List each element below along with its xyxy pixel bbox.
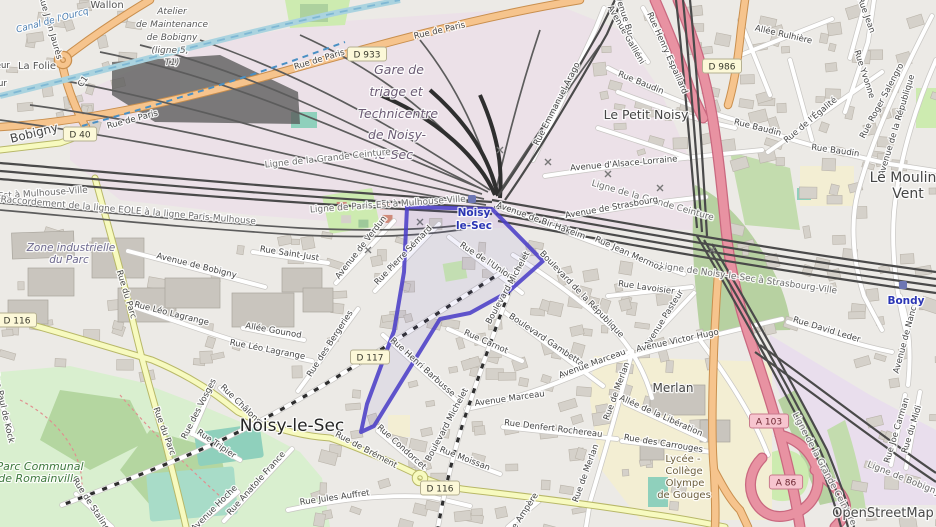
building — [301, 236, 315, 250]
building — [547, 301, 563, 317]
road-ref-badge: A 86 — [769, 475, 802, 489]
road-ref-badge: D 933 — [348, 47, 387, 61]
building — [781, 46, 789, 53]
ind-label: triage et — [369, 84, 423, 99]
map-canvas[interactable]: Rue de ParisRue de ParisRue de ParisRue … — [0, 0, 936, 527]
building — [619, 261, 633, 275]
svg-text:A 86: A 86 — [776, 479, 797, 489]
building — [740, 75, 754, 84]
building — [17, 102, 33, 111]
building — [381, 314, 394, 322]
building — [237, 245, 245, 255]
road-ref-badge: D 986 — [703, 59, 742, 73]
building — [341, 215, 351, 223]
building — [26, 32, 43, 43]
svg-text:D 986: D 986 — [709, 63, 736, 73]
building — [833, 235, 846, 244]
road-ref-badge: D 40 — [63, 127, 96, 141]
ind-label: Gare de — [374, 62, 424, 77]
building — [576, 387, 591, 397]
building — [856, 206, 867, 218]
building — [291, 239, 299, 244]
building — [889, 378, 900, 388]
station-icon[interactable] — [468, 195, 476, 203]
station-label: Bondy — [887, 295, 924, 307]
road-ref-badge: D 116 — [0, 313, 37, 327]
building — [827, 195, 842, 204]
building — [673, 138, 688, 150]
building — [600, 91, 609, 100]
building — [930, 414, 936, 420]
building — [55, 358, 66, 367]
poi-label: Atelier — [156, 7, 188, 17]
building — [583, 329, 592, 337]
building — [900, 254, 914, 264]
building — [593, 62, 607, 76]
building — [320, 483, 327, 495]
attribution-link[interactable]: OpenStreetMap — [832, 506, 934, 521]
ind-label: Technicentre — [358, 106, 438, 121]
building — [18, 282, 24, 290]
sub-label: Le Moulin — [870, 170, 936, 186]
sch-label: Lycée - — [665, 453, 701, 465]
ind2-label: Zone industrielle — [26, 242, 116, 254]
building — [449, 366, 458, 373]
poi-label: de Bobigny — [147, 33, 198, 43]
sch-label: Olympe — [666, 478, 705, 489]
sub-label: Merlan — [653, 381, 694, 395]
town-label: Noisy-le-Sec — [240, 416, 345, 436]
building — [454, 510, 471, 522]
building — [848, 312, 865, 319]
building — [825, 63, 837, 73]
building — [346, 403, 361, 410]
svg-text:D 116: D 116 — [4, 317, 31, 327]
sub-label: Le Petit Noisy — [604, 107, 689, 122]
building — [799, 187, 817, 199]
ind-label: de Noisy- — [368, 127, 427, 142]
building — [371, 255, 383, 266]
building — [498, 372, 516, 380]
svg-text:D 933: D 933 — [354, 51, 381, 61]
st-label: Pasteur — [0, 61, 10, 71]
sch-label: Collège — [665, 465, 702, 477]
building — [816, 96, 825, 102]
building — [739, 99, 754, 109]
poi-label: de Maintenance — [136, 20, 209, 30]
st-label: Pasteur — [0, 79, 7, 89]
building — [614, 123, 626, 130]
building — [352, 390, 361, 399]
building — [828, 43, 836, 52]
station-icon[interactable] — [899, 281, 907, 289]
building — [541, 480, 550, 490]
building — [292, 366, 302, 378]
building — [827, 22, 842, 36]
building — [200, 351, 213, 364]
place-label: Wallon — [90, 0, 123, 11]
map-viewport[interactable]: Rue de ParisRue de ParisRue de ParisRue … — [0, 0, 936, 527]
park-label: de Romainville — [0, 472, 80, 485]
building — [776, 157, 785, 165]
building — [822, 158, 836, 171]
building — [929, 188, 936, 194]
poi-label: T1) — [165, 58, 180, 68]
building — [583, 269, 599, 282]
ind2-label: du Parc — [49, 254, 89, 266]
road-ref-badge: D 116 — [421, 481, 460, 495]
svg-text:D 117: D 117 — [357, 354, 384, 364]
building — [602, 46, 612, 52]
building — [117, 360, 134, 371]
building — [358, 220, 368, 228]
building — [471, 509, 482, 516]
sub-label: Vent — [892, 186, 924, 202]
building — [2, 329, 13, 336]
building — [819, 33, 828, 44]
svg-text:A 103: A 103 — [756, 418, 782, 428]
road-ref-badge: A 103 — [750, 414, 789, 428]
station-label: Noisy — [458, 207, 491, 219]
building — [518, 377, 528, 386]
sch-label: de Gouges — [657, 490, 711, 501]
poi-label: (ligne 5, — [152, 46, 189, 56]
building — [622, 469, 629, 476]
building — [669, 501, 678, 510]
building — [495, 506, 508, 518]
road-ref-badge: D 117 — [351, 350, 390, 364]
building — [474, 426, 485, 436]
svg-text:D 116: D 116 — [427, 485, 454, 495]
building — [777, 103, 787, 113]
building — [666, 360, 674, 372]
station-label: le-Sec — [456, 220, 492, 232]
building — [313, 513, 325, 527]
building — [714, 33, 731, 47]
building — [506, 464, 518, 471]
place-label: La Folie — [18, 61, 56, 72]
building — [426, 400, 435, 407]
svg-text:D 40: D 40 — [69, 131, 91, 141]
